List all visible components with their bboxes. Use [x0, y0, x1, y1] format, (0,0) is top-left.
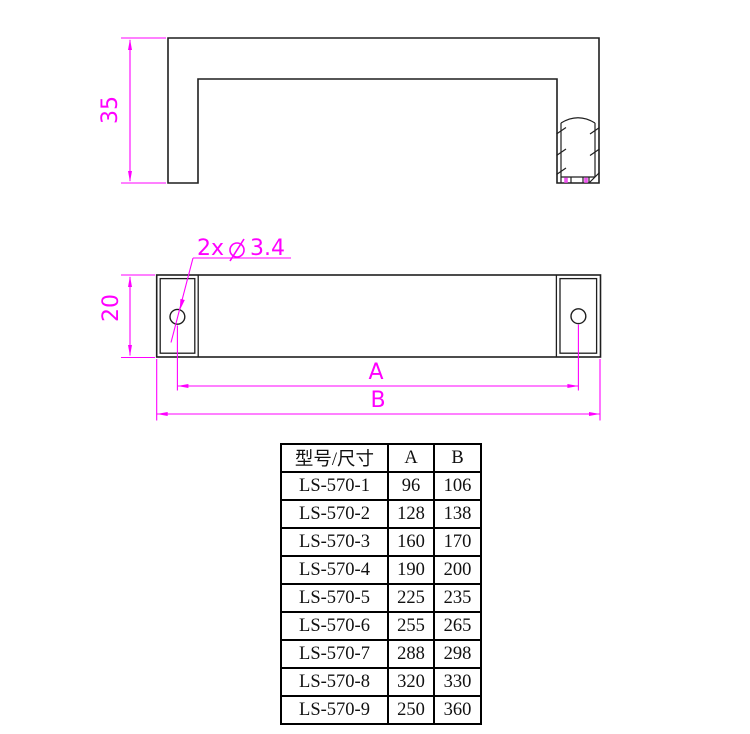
hole-callout — [171, 258, 291, 343]
model-cell: LS-570-2 — [281, 500, 388, 528]
a-cell: 250 — [388, 696, 434, 724]
dimension-35 — [121, 38, 166, 183]
table-row: LS-570-6 255 265 — [281, 612, 481, 640]
dim-a-label: A — [368, 362, 383, 384]
header-model-size: 型号/尺寸 — [281, 444, 388, 472]
table-row: LS-570-1 96 106 — [281, 472, 481, 500]
model-cell: LS-570-8 — [281, 668, 388, 696]
a-cell: 288 — [388, 640, 434, 668]
handle-bar-outline — [157, 275, 601, 357]
a-cell: 128 — [388, 500, 434, 528]
arrow-left-icon — [177, 384, 188, 388]
screw-thread-ticks — [557, 128, 600, 175]
table-row: LS-570-3 160 170 — [281, 528, 481, 556]
side-view — [168, 38, 599, 183]
b-cell: 200 — [434, 556, 481, 584]
dim-b-label: B — [370, 390, 385, 412]
table-row: LS-570-4 190 200 — [281, 556, 481, 584]
side-view-outline — [168, 38, 599, 183]
header-b: B — [434, 444, 481, 472]
arrow-down-icon — [128, 171, 132, 182]
a-cell: 160 — [388, 528, 434, 556]
dim-20-label: 20 — [101, 294, 123, 322]
leader-arrow-icon — [180, 299, 185, 310]
size-spec-table: 型号/尺寸 A B LS-570-1 96 106 LS-570-2 128 1… — [280, 443, 482, 725]
hole-count-label: 2x — [197, 238, 224, 260]
model-cell: LS-570-7 — [281, 640, 388, 668]
model-cell: LS-570-3 — [281, 528, 388, 556]
a-cell: 190 — [388, 556, 434, 584]
dim-35-label: 35 — [100, 96, 122, 124]
arrow-down-icon — [128, 345, 132, 356]
b-cell: 330 — [434, 668, 481, 696]
header-a: A — [388, 444, 434, 472]
model-cell: LS-570-9 — [281, 696, 388, 724]
b-cell: 360 — [434, 696, 481, 724]
screw-slot-left — [564, 178, 568, 183]
table-row: LS-570-9 250 360 — [281, 696, 481, 724]
model-cell: LS-570-4 — [281, 556, 388, 584]
technical-drawing-page: 35 20 2x 3.4 A B 型号/尺寸 A B LS-570-1 96 1… — [0, 0, 750, 734]
screw-corner-chamfer — [589, 173, 600, 184]
diameter-symbol-icon — [227, 236, 247, 262]
hole-diameter-label: 2x 3.4 — [197, 236, 285, 262]
arrow-up-icon — [128, 39, 132, 50]
a-cell: 320 — [388, 668, 434, 696]
b-cell: 298 — [434, 640, 481, 668]
b-cell: 138 — [434, 500, 481, 528]
b-cell: 170 — [434, 528, 481, 556]
table-row: LS-570-7 288 298 — [281, 640, 481, 668]
b-cell: 106 — [434, 472, 481, 500]
arrow-up-icon — [128, 276, 132, 287]
model-cell: LS-570-6 — [281, 612, 388, 640]
screw-hole-right — [571, 309, 586, 324]
screw-slot-right — [584, 178, 588, 183]
model-cell: LS-570-1 — [281, 472, 388, 500]
table-header-row: 型号/尺寸 A B — [281, 444, 481, 472]
dimension-20 — [121, 275, 155, 358]
b-cell: 265 — [434, 612, 481, 640]
hole-diameter-value: 3.4 — [250, 238, 285, 260]
arrow-right-icon — [567, 384, 578, 388]
b-cell: 235 — [434, 584, 481, 612]
table-row: LS-570-8 320 330 — [281, 668, 481, 696]
a-cell: 225 — [388, 584, 434, 612]
a-cell: 96 — [388, 472, 434, 500]
table-row: LS-570-5 225 235 — [281, 584, 481, 612]
front-view — [157, 275, 601, 357]
table-row: LS-570-2 128 138 — [281, 500, 481, 528]
screw-dome — [561, 118, 595, 123]
arrow-right-icon — [589, 412, 600, 416]
model-cell: LS-570-5 — [281, 584, 388, 612]
arrow-left-icon — [157, 412, 168, 416]
screw-icon — [557, 118, 600, 183]
a-cell: 255 — [388, 612, 434, 640]
